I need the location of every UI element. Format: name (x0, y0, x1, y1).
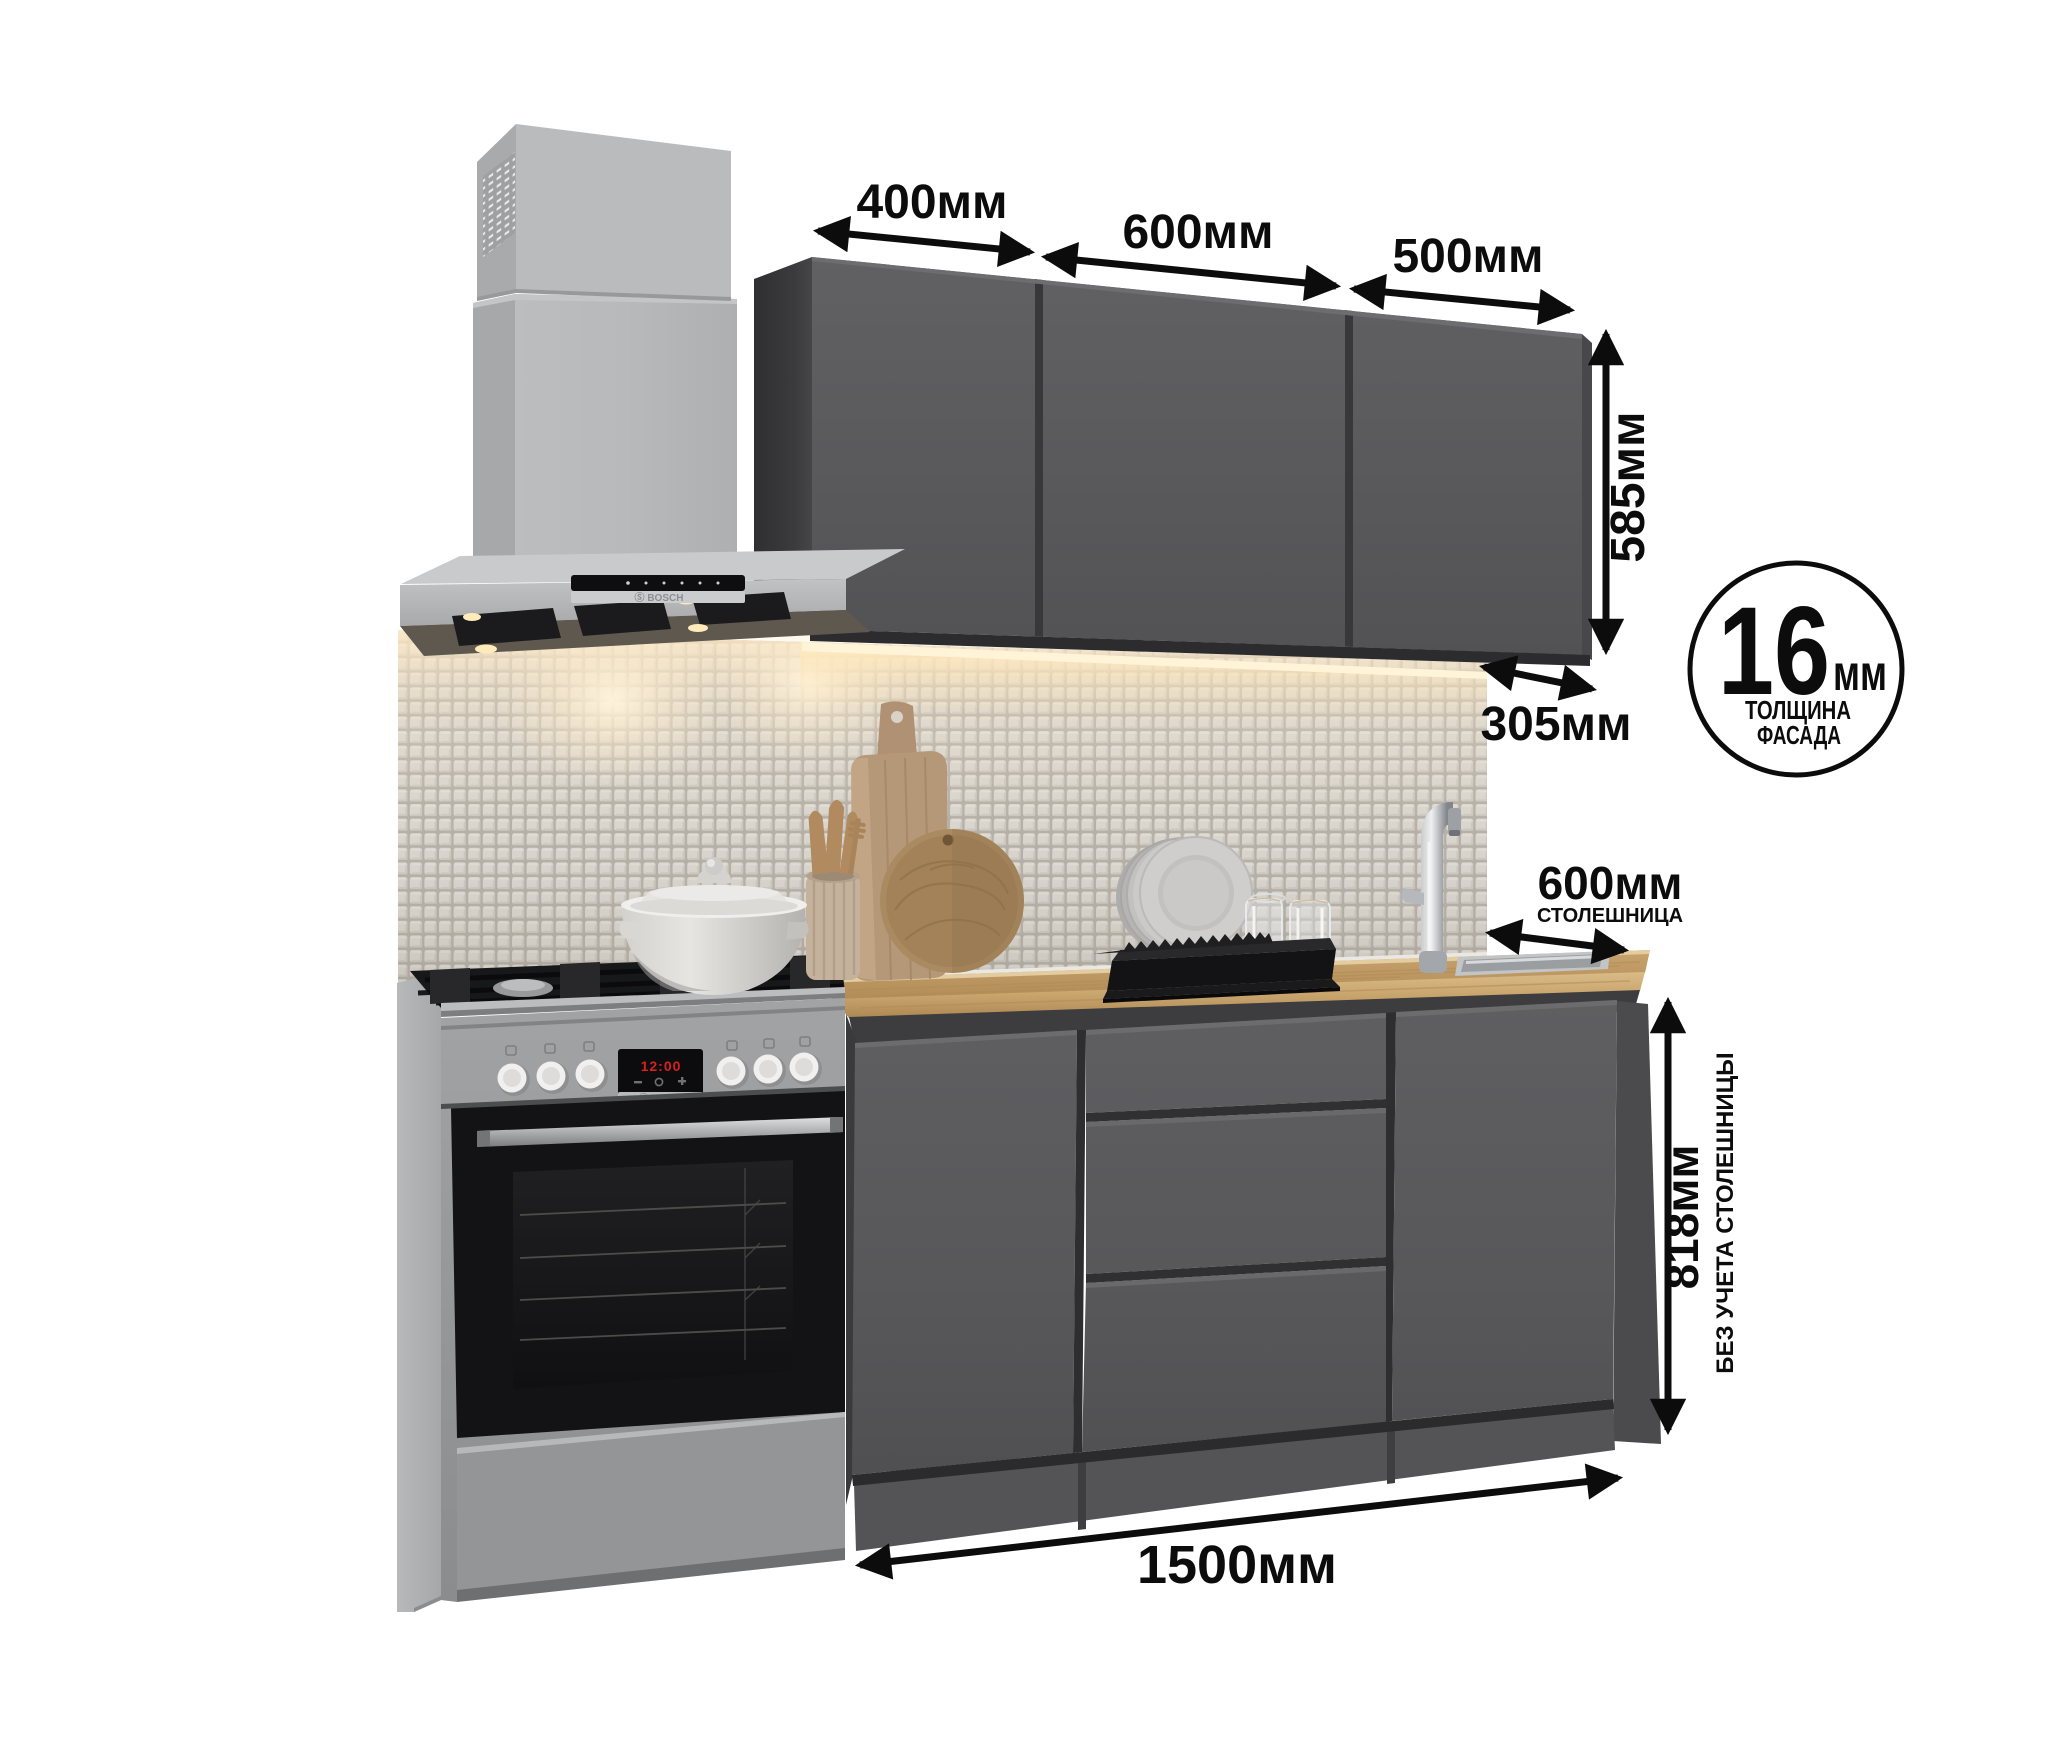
svg-text:БЕЗ УЧЕТА СТОЛЕШНИЦЫ: БЕЗ УЧЕТА СТОЛЕШНИЦЫ (1712, 1052, 1739, 1373)
svg-text:500мм: 500мм (1392, 230, 1543, 283)
svg-text:600мм: 600мм (1538, 857, 1683, 909)
svg-text:305мм: 305мм (1480, 698, 1631, 751)
svg-text:400мм: 400мм (856, 176, 1007, 229)
svg-text:818мм: 818мм (1656, 1145, 1708, 1290)
svg-text:600мм: 600мм (1122, 206, 1273, 259)
svg-text:1500мм: 1500мм (1137, 1535, 1337, 1595)
svg-text:СТОЛЕШНИЦА: СТОЛЕШНИЦА (1537, 905, 1683, 927)
svg-text:мм: мм (1833, 645, 1887, 701)
svg-text:585мм: 585мм (1602, 411, 1655, 562)
svg-text:Ⓢ BOSCH: Ⓢ BOSCH (635, 591, 684, 604)
svg-text:12:00: 12:00 (641, 1058, 682, 1074)
svg-text:ФАСАДА: ФАСАДА (1757, 720, 1841, 750)
